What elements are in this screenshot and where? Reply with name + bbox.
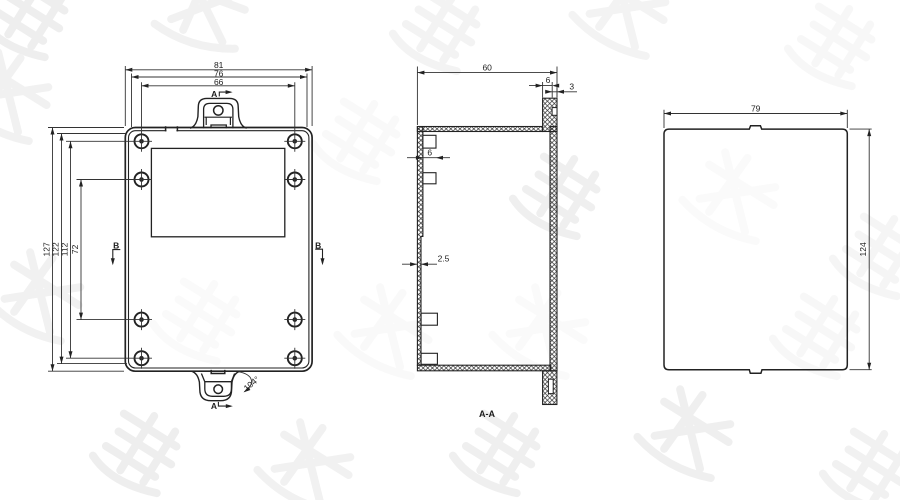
svg-text:A: A [211, 89, 217, 99]
svg-text:66: 66 [214, 77, 224, 87]
svg-text:112: 112 [60, 242, 70, 256]
svg-text:A: A [211, 401, 217, 411]
svg-text:6: 6 [546, 75, 551, 85]
svg-text:6: 6 [427, 147, 432, 157]
svg-text:72: 72 [70, 244, 80, 254]
svg-text:124: 124 [858, 242, 868, 256]
svg-text:A-A: A-A [479, 409, 495, 419]
svg-text:60: 60 [482, 63, 492, 73]
svg-text:2.5: 2.5 [438, 254, 450, 264]
svg-text:79: 79 [751, 104, 761, 114]
svg-text:B: B [113, 240, 119, 250]
svg-text:3: 3 [569, 82, 574, 92]
